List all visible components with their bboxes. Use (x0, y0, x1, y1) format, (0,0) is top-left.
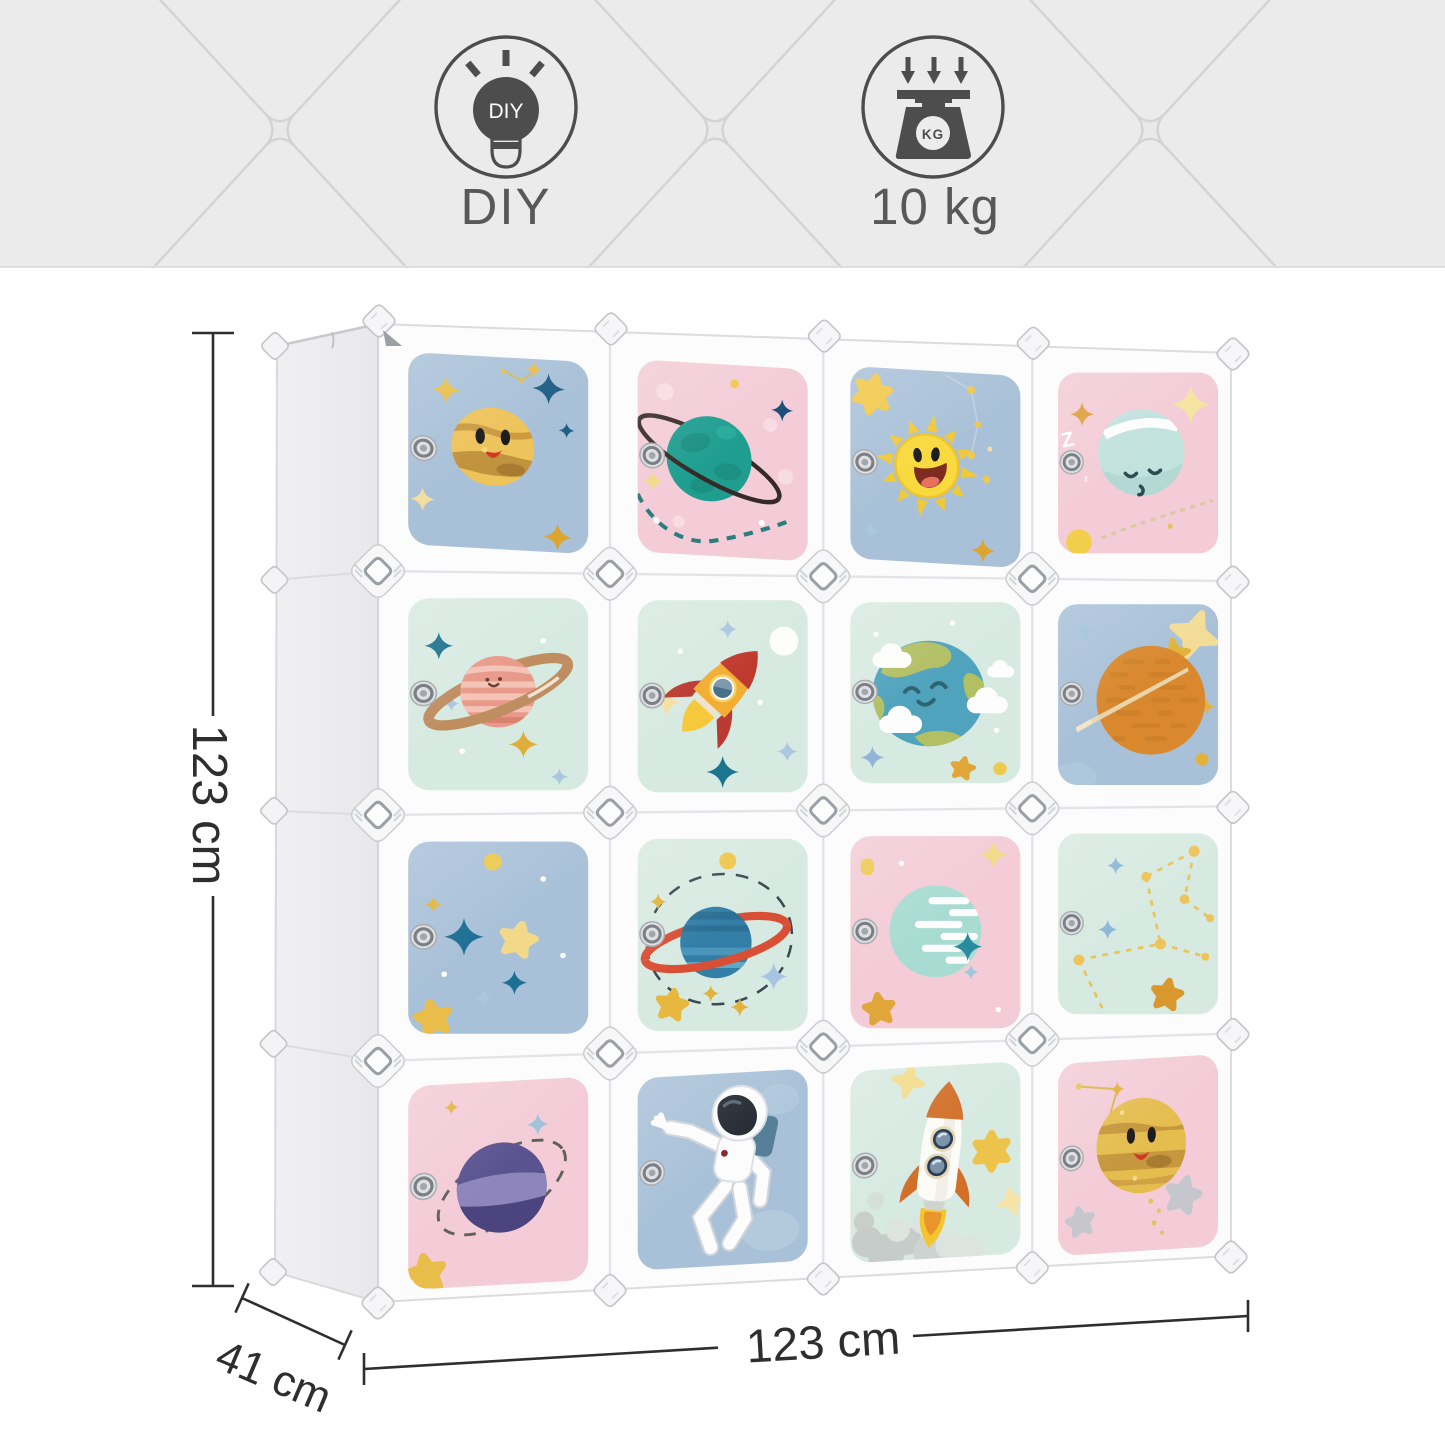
svg-text:DIY: DIY (488, 100, 523, 123)
svg-text:DIY: DIY (460, 178, 551, 235)
svg-text:123 cm: 123 cm (182, 725, 236, 886)
svg-text:KG: KG (922, 127, 944, 142)
svg-text:10 kg: 10 kg (870, 178, 1000, 235)
svg-text:123 cm: 123 cm (745, 1311, 902, 1373)
